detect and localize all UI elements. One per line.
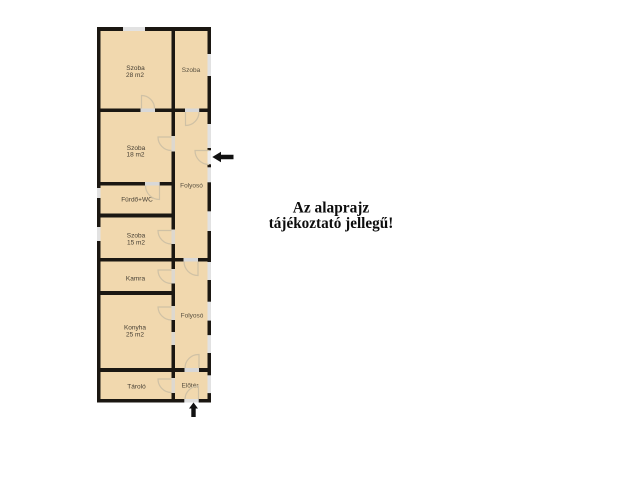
svg-text:Tároló: Tároló — [127, 384, 146, 391]
svg-text:Folyosó: Folyosó — [181, 313, 204, 320]
svg-text:tájékoztató jellegű!: tájékoztató jellegű! — [269, 215, 394, 232]
svg-text:Fürdő+WC: Fürdő+WC — [121, 197, 153, 204]
svg-text:Szoba: Szoba — [182, 67, 201, 74]
svg-text:28 m2: 28 m2 — [126, 72, 144, 79]
svg-text:25 m2: 25 m2 — [126, 332, 144, 339]
svg-text:Konyha: Konyha — [124, 325, 146, 332]
svg-text:18 m2: 18 m2 — [126, 152, 144, 159]
svg-text:Folyosó: Folyosó — [180, 183, 203, 190]
svg-text:Az alaprajz: Az alaprajz — [293, 200, 370, 217]
svg-text:15 m2: 15 m2 — [127, 240, 145, 247]
svg-text:Szoba: Szoba — [127, 233, 146, 240]
svg-text:Kamra: Kamra — [126, 276, 146, 283]
svg-text:Szoba: Szoba — [126, 65, 145, 72]
